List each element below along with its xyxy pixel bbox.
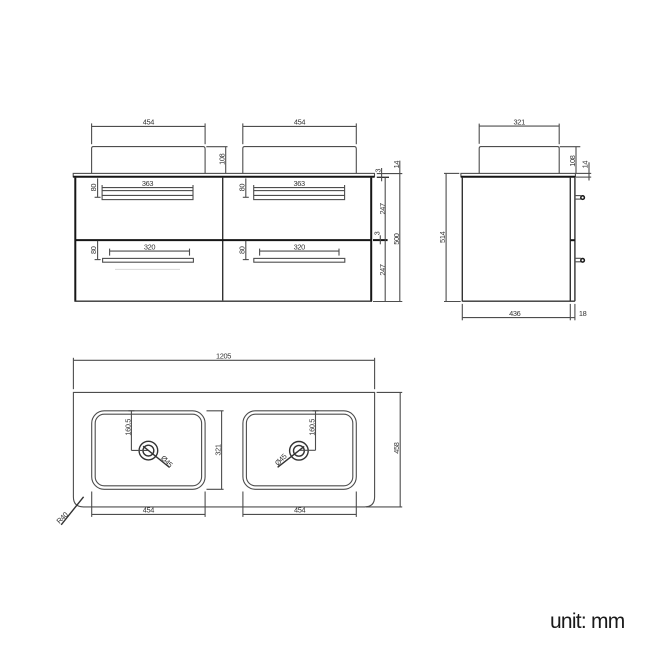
svg-text:321: 321: [514, 117, 526, 126]
svg-text:80: 80: [89, 246, 98, 254]
svg-text:108: 108: [218, 153, 227, 165]
svg-text:454: 454: [294, 118, 306, 127]
svg-text:247: 247: [378, 203, 387, 215]
svg-text:500: 500: [392, 233, 401, 245]
svg-text:363: 363: [294, 179, 306, 188]
svg-text:80: 80: [89, 184, 98, 192]
svg-text:458: 458: [392, 442, 401, 454]
svg-text:18: 18: [579, 309, 587, 318]
svg-text:1205: 1205: [216, 352, 231, 361]
svg-text:320: 320: [294, 242, 306, 251]
svg-text:unit: mm: unit: mm: [550, 610, 625, 633]
svg-text:R40: R40: [55, 510, 70, 525]
svg-text:3: 3: [372, 231, 381, 235]
svg-text:160.5: 160.5: [123, 419, 132, 436]
svg-text:14: 14: [581, 161, 590, 169]
svg-text:320: 320: [144, 242, 156, 251]
svg-text:321: 321: [214, 444, 223, 456]
svg-text:436: 436: [509, 309, 521, 318]
svg-text:514: 514: [438, 231, 447, 243]
svg-text:80: 80: [237, 184, 246, 192]
svg-text:454: 454: [143, 118, 155, 127]
svg-text:108: 108: [568, 155, 577, 167]
svg-text:454: 454: [143, 506, 155, 515]
svg-text:160.5: 160.5: [308, 419, 317, 436]
svg-text:Ø45: Ø45: [159, 454, 175, 470]
svg-text:14: 14: [392, 161, 401, 169]
svg-text:454: 454: [294, 506, 306, 515]
svg-text:247: 247: [378, 264, 387, 276]
svg-text:3: 3: [373, 169, 382, 173]
svg-text:363: 363: [142, 179, 154, 188]
svg-text:Ø45: Ø45: [273, 452, 289, 468]
svg-text:80: 80: [237, 246, 246, 254]
